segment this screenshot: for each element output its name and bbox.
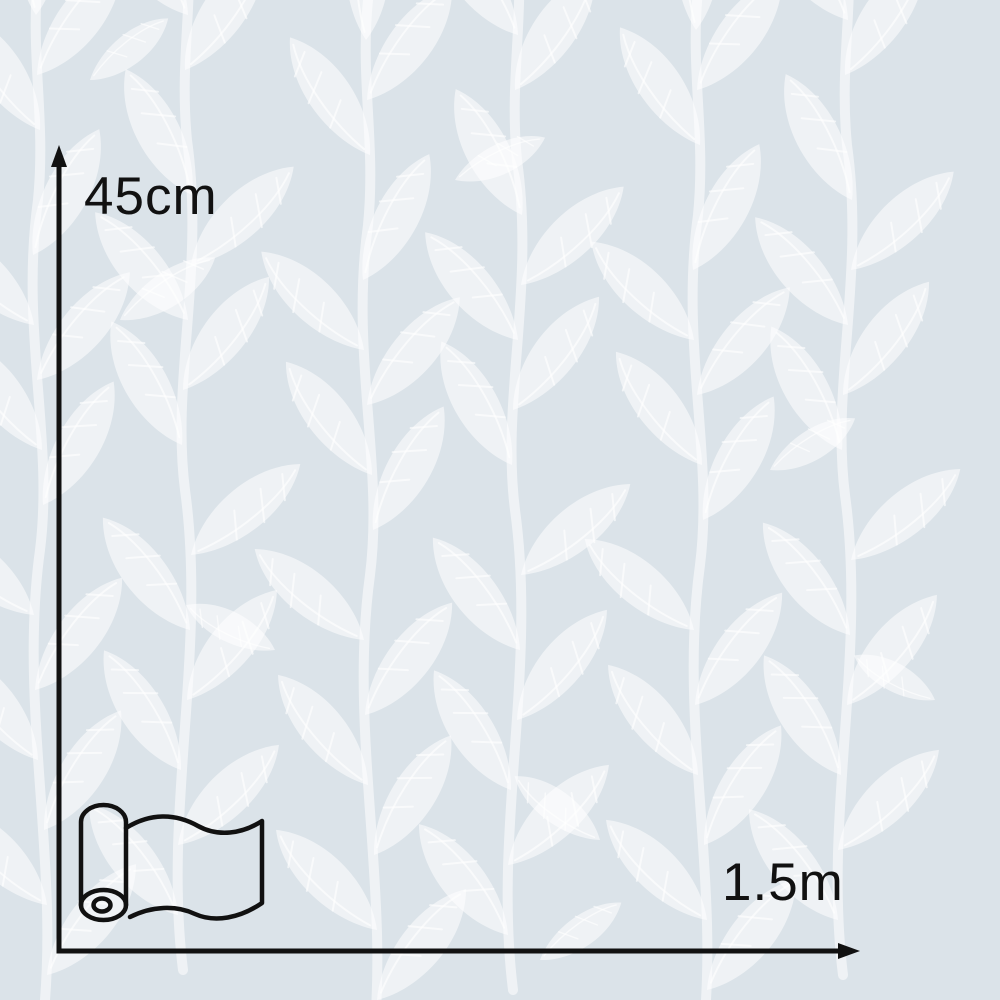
wallpaper-swatch-preview: 45cm 1.5m [0, 0, 1000, 1000]
up-arrowhead-icon [51, 145, 67, 167]
width-label: 1.5m [722, 852, 844, 913]
height-label: 45cm [84, 166, 218, 227]
height-arrow [51, 145, 67, 951]
dimension-overlay [0, 0, 1000, 1000]
right-arrowhead-icon [838, 943, 860, 959]
roll-sheet [126, 816, 262, 918]
roll-end-face [81, 890, 126, 920]
width-arrow [57, 943, 861, 959]
roll-core-hole [94, 899, 111, 912]
wallpaper-roll-icon [81, 805, 262, 920]
